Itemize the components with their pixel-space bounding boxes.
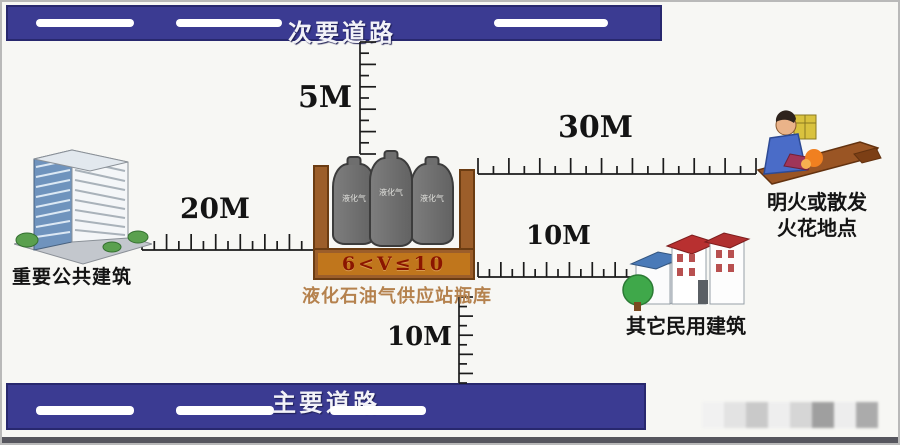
lane-dash — [176, 19, 282, 27]
lane-dash — [330, 406, 426, 415]
distance-5m-label: 5M — [298, 80, 352, 115]
station-name-label: 液化石油气供应站瓶库 — [292, 282, 502, 308]
ruler-20m-horizontal — [142, 230, 316, 252]
cylinder-valve — [347, 156, 362, 165]
distance-20m-label: 20M — [180, 192, 250, 225]
public-building-illustration — [14, 145, 152, 265]
ruler-10m-vertical — [457, 297, 483, 385]
gas-cylinder: 液化气 — [369, 157, 413, 247]
gas-cylinder: 液化气 — [410, 163, 454, 245]
secondary-road: 次要道路 — [6, 5, 662, 41]
cylinder-valve — [425, 156, 440, 165]
open-flame-label: 明火或散发 火花地点 — [748, 190, 886, 242]
ruler-5m-vertical — [358, 42, 384, 156]
main-road: 主要道路 — [6, 383, 646, 430]
container-basin: 6<V≤10 — [313, 248, 475, 280]
frame-bottom-edge — [2, 437, 898, 443]
watermark — [702, 402, 878, 428]
lane-dash — [36, 406, 134, 415]
lane-dash — [494, 19, 608, 27]
volume-range-label: 6<V≤10 — [318, 253, 470, 275]
civilian-building-label: 其它民用建筑 — [620, 310, 752, 339]
civilian-buildings-illustration — [618, 224, 754, 316]
welder-open-flame-illustration — [750, 108, 882, 194]
public-building-label: 重要公共建筑 — [12, 262, 132, 289]
ruler-30m-horizontal — [478, 152, 758, 176]
cylinder-valve — [384, 150, 399, 159]
distance-10m-bottom-label: 10M — [387, 322, 452, 352]
lane-dash — [176, 406, 274, 415]
lpg-station-spacing-diagram: 次要道路 主要道路 5M 20M 30M 10M 10M — [0, 0, 900, 445]
distance-30m-label: 30M — [558, 110, 633, 145]
ruler-10m-horizontal — [478, 255, 640, 279]
distance-10m-right-label: 10M — [526, 221, 591, 251]
lane-dash — [36, 19, 134, 27]
